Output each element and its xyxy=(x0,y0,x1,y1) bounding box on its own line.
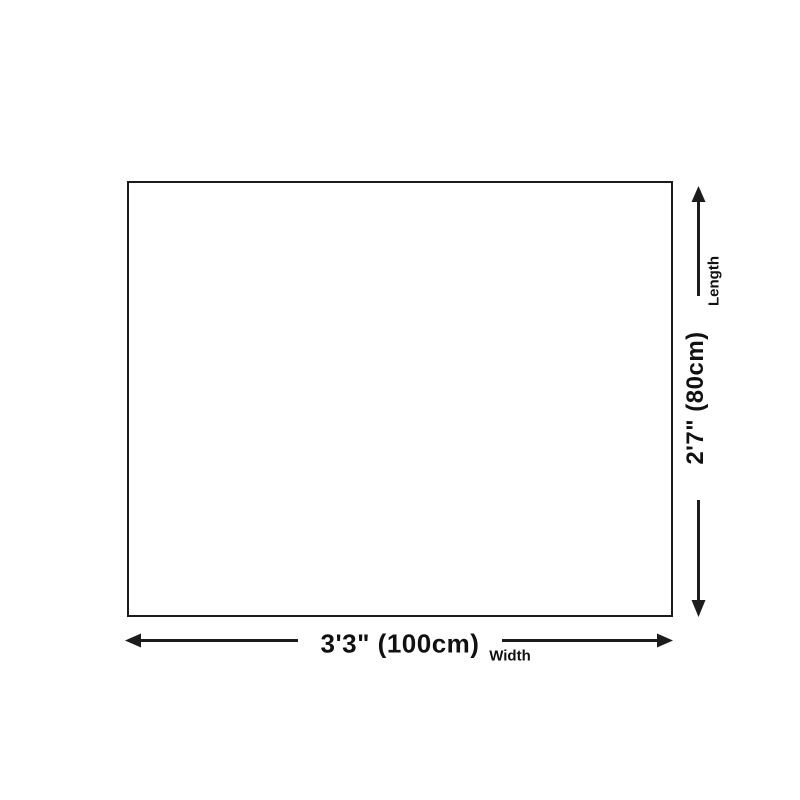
length-axis-label: Length xyxy=(706,256,723,306)
width-arrow-left-icon xyxy=(125,634,298,648)
width-axis-label: Width xyxy=(489,648,531,665)
length-dimension-value: 2'7" (80cm) xyxy=(682,331,710,464)
width-arrow-right-icon xyxy=(502,634,673,648)
length-arrow-down-icon xyxy=(692,500,706,617)
size-diagram: 3'3" (100cm) Width 2'7" (80cm) Length xyxy=(0,0,800,800)
width-dimension-value: 3'3" (100cm) xyxy=(321,629,480,660)
product-outline-rect xyxy=(127,181,673,617)
length-arrow-up-icon xyxy=(692,186,706,296)
